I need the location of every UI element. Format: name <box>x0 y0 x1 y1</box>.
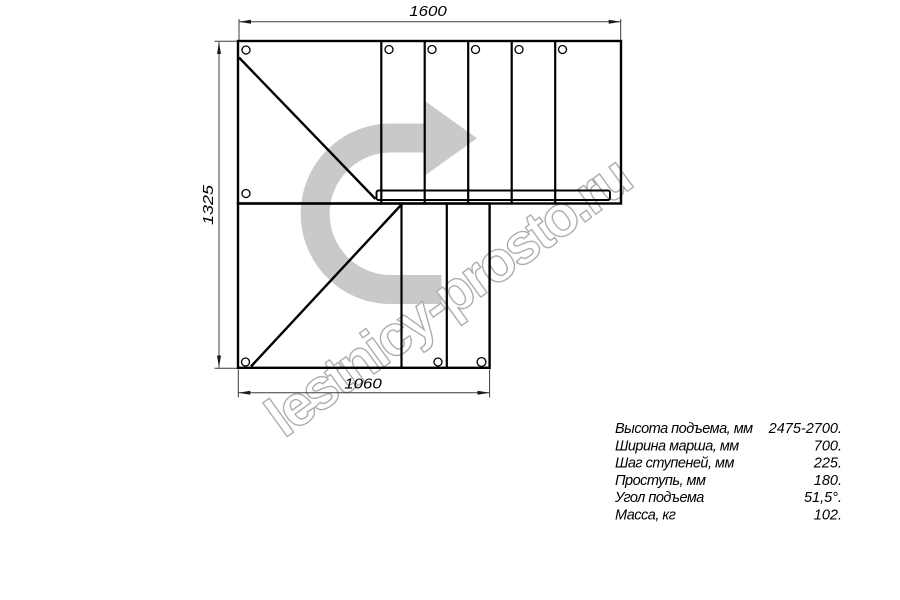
svg-text:51,5°.: 51,5°. <box>804 490 842 506</box>
svg-text:Высота подъема, мм: Высота подъема, мм <box>615 421 753 437</box>
svg-text:102.: 102. <box>814 507 842 523</box>
svg-text:700.: 700. <box>814 438 842 454</box>
svg-text:225.: 225. <box>813 456 842 472</box>
svg-text:1060: 1060 <box>344 377 382 393</box>
svg-text:Проступь, мм: Проступь, мм <box>615 473 706 489</box>
svg-text:Шаг ступеней, мм: Шаг ступеней, мм <box>615 456 734 472</box>
svg-text:Угол подъема: Угол подъема <box>614 490 704 506</box>
svg-text:Масса, кг: Масса, кг <box>615 507 676 523</box>
svg-text:180.: 180. <box>814 473 842 489</box>
svg-text:1600: 1600 <box>409 4 447 20</box>
svg-text:1325: 1325 <box>201 184 217 225</box>
svg-text:2475-2700.: 2475-2700. <box>768 421 842 437</box>
svg-text:Ширина марша, мм: Ширина марша, мм <box>615 438 739 454</box>
